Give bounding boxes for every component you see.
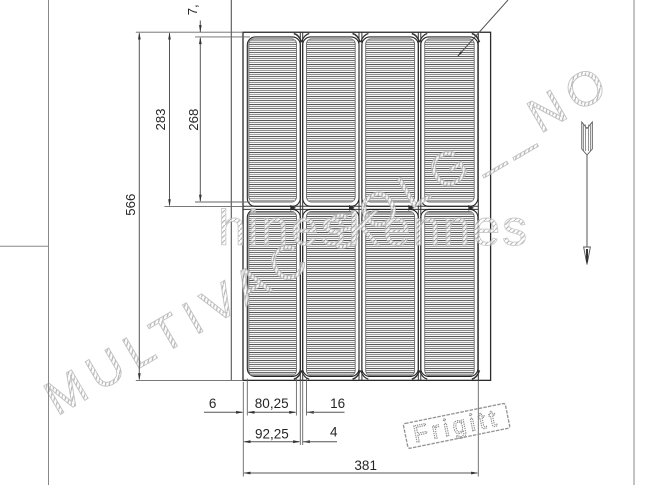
svg-text:92,25: 92,25 [255, 426, 289, 441]
svg-text:268: 268 [186, 109, 201, 131]
svg-text:566: 566 [123, 194, 138, 216]
svg-text:hinesKennes: hinesKennes [218, 200, 529, 256]
svg-text:16: 16 [330, 396, 345, 411]
svg-text:4: 4 [330, 424, 338, 439]
svg-text:283: 283 [153, 108, 168, 130]
svg-text:381: 381 [354, 458, 377, 473]
svg-text:7,: 7, [185, 4, 200, 15]
svg-text:80,25: 80,25 [255, 396, 289, 411]
svg-text:6: 6 [209, 396, 217, 411]
